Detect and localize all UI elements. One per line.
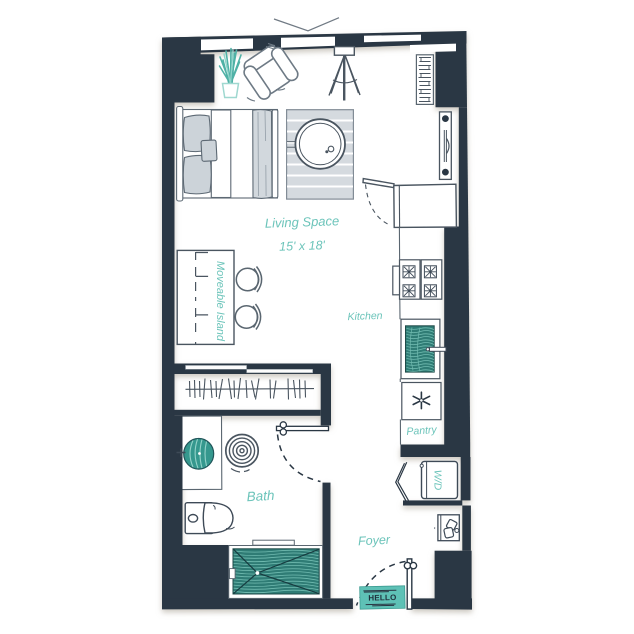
svg-text:Pantry: Pantry [406, 424, 438, 438]
svg-text:Moveable Island: Moveable Island [214, 261, 226, 342]
svg-text:Living Space: Living Space [265, 213, 340, 231]
svg-text:W/D: W/D [432, 470, 444, 491]
svg-text:Bath: Bath [246, 488, 275, 504]
svg-text:Foyer: Foyer [358, 533, 391, 549]
svg-text:Kitchen: Kitchen [347, 310, 383, 323]
svg-text:15' x 18': 15' x 18' [279, 238, 326, 254]
svg-text:HELLO: HELLO [368, 593, 396, 603]
